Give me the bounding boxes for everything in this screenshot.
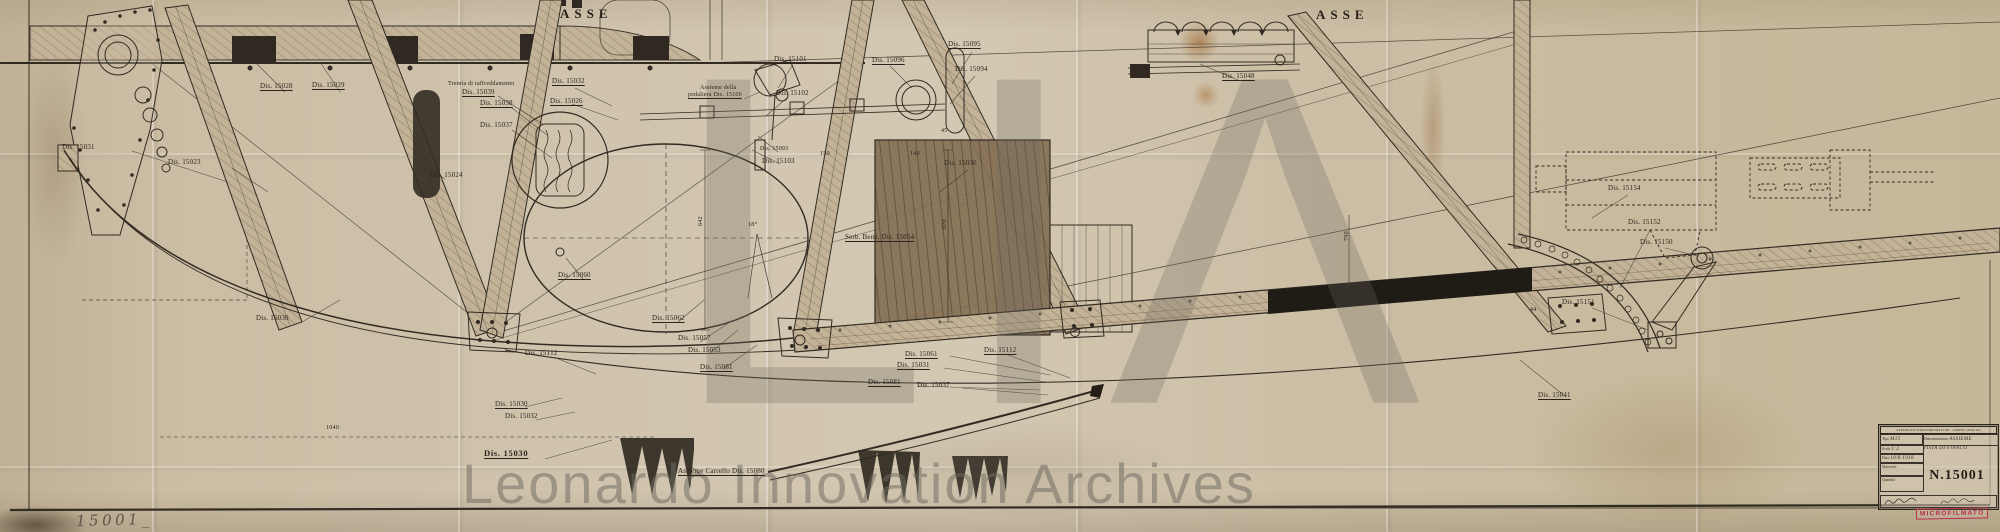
part-label: Dis. 15094 [955,65,988,73]
part-label: Dis. 15112 [525,349,557,357]
part-label: Dis. 15048 [1222,72,1255,80]
part-label: Dis. 15151 [1562,298,1595,306]
tipo-value: M15 [1890,436,1900,442]
part-label: Dis. 15081 [700,363,733,371]
part-label: Dis. 15112 [984,346,1016,354]
part-label: Dis. 15023 [168,158,201,166]
part-label: Dis. 15061 [905,350,938,358]
part-label: Dis. 15026 [550,97,583,105]
blueprint-sheet: LIΛ Leonardo Innovation Archives ASSE AS… [0,0,2000,532]
denominazione-label: Denominazione [1924,437,1948,441]
microfilm-stamp: MICROFILMATO [1916,507,1989,519]
title-block-header: AEROPLANI NIEUPORT-MACCHI - VARESE (ITAL… [1880,426,1997,434]
quantita-label: Quantità [1882,478,1895,482]
part-label: Dis. 15039 [462,88,495,96]
part-label: Dis. 15060 [558,271,591,279]
dimension-text: 790 [1344,231,1350,241]
part-label: Dis. 15150 [1640,238,1673,246]
part-label: Dis. 15096 [872,56,905,64]
part-label: Dis. 15024 [430,171,463,179]
part-label: Dis. 15031 [897,361,930,369]
dimension-text: 44 [1530,307,1537,313]
materiale-label: Materiale [1882,465,1897,469]
dimension-text: 18° [748,222,757,228]
part-label: Dis. 15032 [552,77,585,85]
dimension-text: 1040 [326,425,339,431]
part-label: Dis. 15031 [62,143,95,151]
part-label: pedaliera Dis. 15100 [688,92,742,98]
part-label: Dis. 15032 [505,412,538,420]
part-label: Dis. 15041 [1538,391,1571,399]
part-label: Dis. 15095 [948,40,981,48]
part-label: Dis. 15102 [776,89,809,97]
dimension-text: 150 [820,151,830,157]
part-label: Dis. 15152 [1628,218,1661,226]
dimension-text: 45 [941,128,948,134]
part-label: Dis. 15057 [678,334,711,342]
part-label: Dis. 15030 [484,448,528,458]
pencil-archive-number: 15001_ [76,510,153,530]
part-label: Dis. 15062 [652,314,685,322]
part-label: Dis. 15081 [868,378,901,386]
part-label: Dis. 15030 [495,400,528,408]
part-label: Assieme Carrello Dis. 15080 [678,467,765,475]
part-label: Dis. 15101 [774,55,807,63]
part-label: Dis. 15038 [480,99,513,107]
part-label: Dis. 15030 [256,314,289,322]
tipo-label: Tipo [1882,437,1889,441]
data-label: Data [1882,456,1889,460]
part-label: Dis. 15103 [762,157,795,165]
part-label: Tremia di raffreddamento [448,81,514,87]
axis-label-right: ASSE [1316,7,1369,23]
scala-label: Scala [1882,447,1890,451]
axis-label-left: ASSE [560,6,613,22]
vista-cell: VISTA DI FIANCO [1922,444,1997,453]
title-block: AEROPLANI NIEUPORT-MACCHI - VARESE (ITAL… [1878,424,1999,510]
denominazione-value2: VISTA DI FIANCO [1923,445,1967,451]
part-label: Dis. 15036 [944,159,977,167]
part-label: Dis. 15093 [760,146,788,152]
part-label: Assieme della [700,85,736,91]
part-label: Dis. 15037 [480,121,513,129]
part-label: Dis. 15053 [688,346,721,354]
part-label: Serb. Benz. Dis. 15054 [845,233,914,241]
part-label: Dis. 15154 [1608,184,1641,192]
dimension-text: 140 [910,151,920,157]
part-label: Dis. 15029 [312,81,345,89]
signature-scribble [1881,496,1996,507]
scala-value: 1:2 [1891,446,1899,452]
drawing-linework [0,0,2000,532]
part-label: Dis. 15028 [260,82,293,90]
dimension-text: 642 [698,216,704,226]
dimension-text: 870 [942,219,948,229]
part-label: Dis. 15037 [917,381,950,389]
denominazione-value: ASSIEME [1949,436,1972,442]
signature-row [1880,495,1997,508]
drawing-number: N.15001 [1918,468,1996,484]
data-value: 10/8 1918 [1890,455,1914,461]
